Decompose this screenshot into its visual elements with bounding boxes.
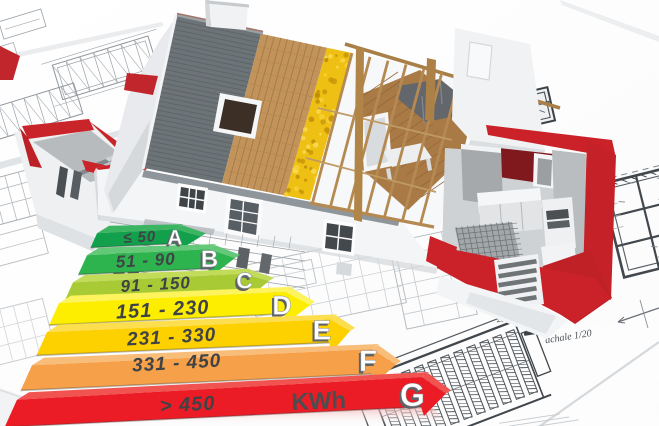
svg-text:> 450: > 450: [159, 392, 216, 417]
svg-text:KWh: KWh: [291, 387, 347, 416]
svg-text:≤ 50: ≤ 50: [123, 228, 157, 247]
svg-text:B: B: [201, 246, 218, 273]
svg-text:G: G: [400, 377, 425, 413]
svg-text:A: A: [167, 227, 182, 250]
svg-text:E: E: [313, 315, 332, 346]
svg-text:D: D: [272, 290, 292, 320]
svg-text:C: C: [236, 268, 253, 294]
svg-text:F: F: [359, 345, 377, 378]
svg-text:51 - 90: 51 - 90: [115, 249, 176, 271]
